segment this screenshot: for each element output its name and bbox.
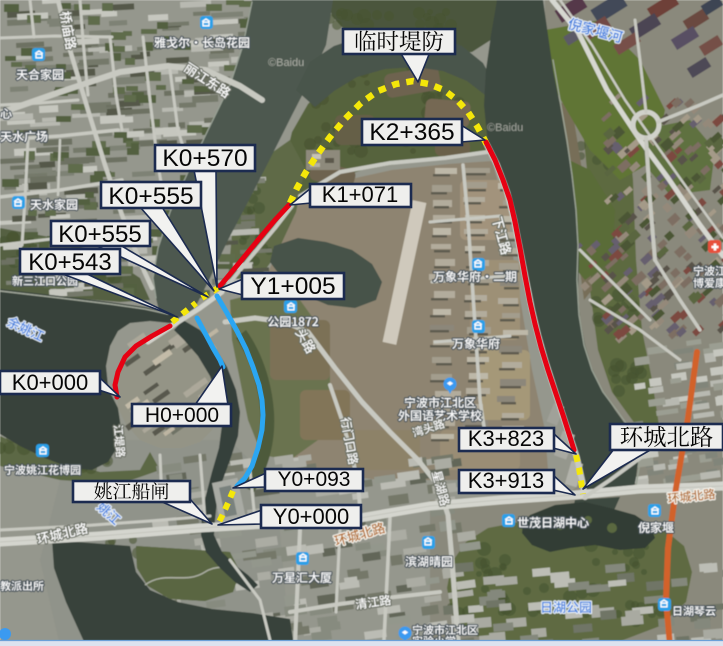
- svg-text:K0+555: K0+555: [58, 221, 141, 248]
- svg-text:K0+555: K0+555: [108, 183, 193, 210]
- svg-text:Y0+093: Y0+093: [278, 468, 351, 491]
- svg-text:K3+823: K3+823: [468, 426, 544, 451]
- svg-text:©Baidu: ©Baidu: [268, 57, 304, 69]
- svg-text:©Baidu: ©Baidu: [487, 122, 523, 134]
- svg-text:K1+071: K1+071: [322, 182, 398, 207]
- svg-text:H0+000: H0+000: [145, 404, 219, 427]
- svg-text:Y1+005: Y1+005: [250, 273, 335, 300]
- svg-text:K0+543: K0+543: [28, 249, 111, 276]
- svg-text:K2+365: K2+365: [369, 119, 454, 146]
- svg-text:K0+570: K0+570: [162, 145, 247, 172]
- svg-text:K3+913: K3+913: [468, 468, 544, 493]
- svg-text:K0+000: K0+000: [12, 370, 88, 395]
- svg-text:Y0+000: Y0+000: [273, 504, 349, 529]
